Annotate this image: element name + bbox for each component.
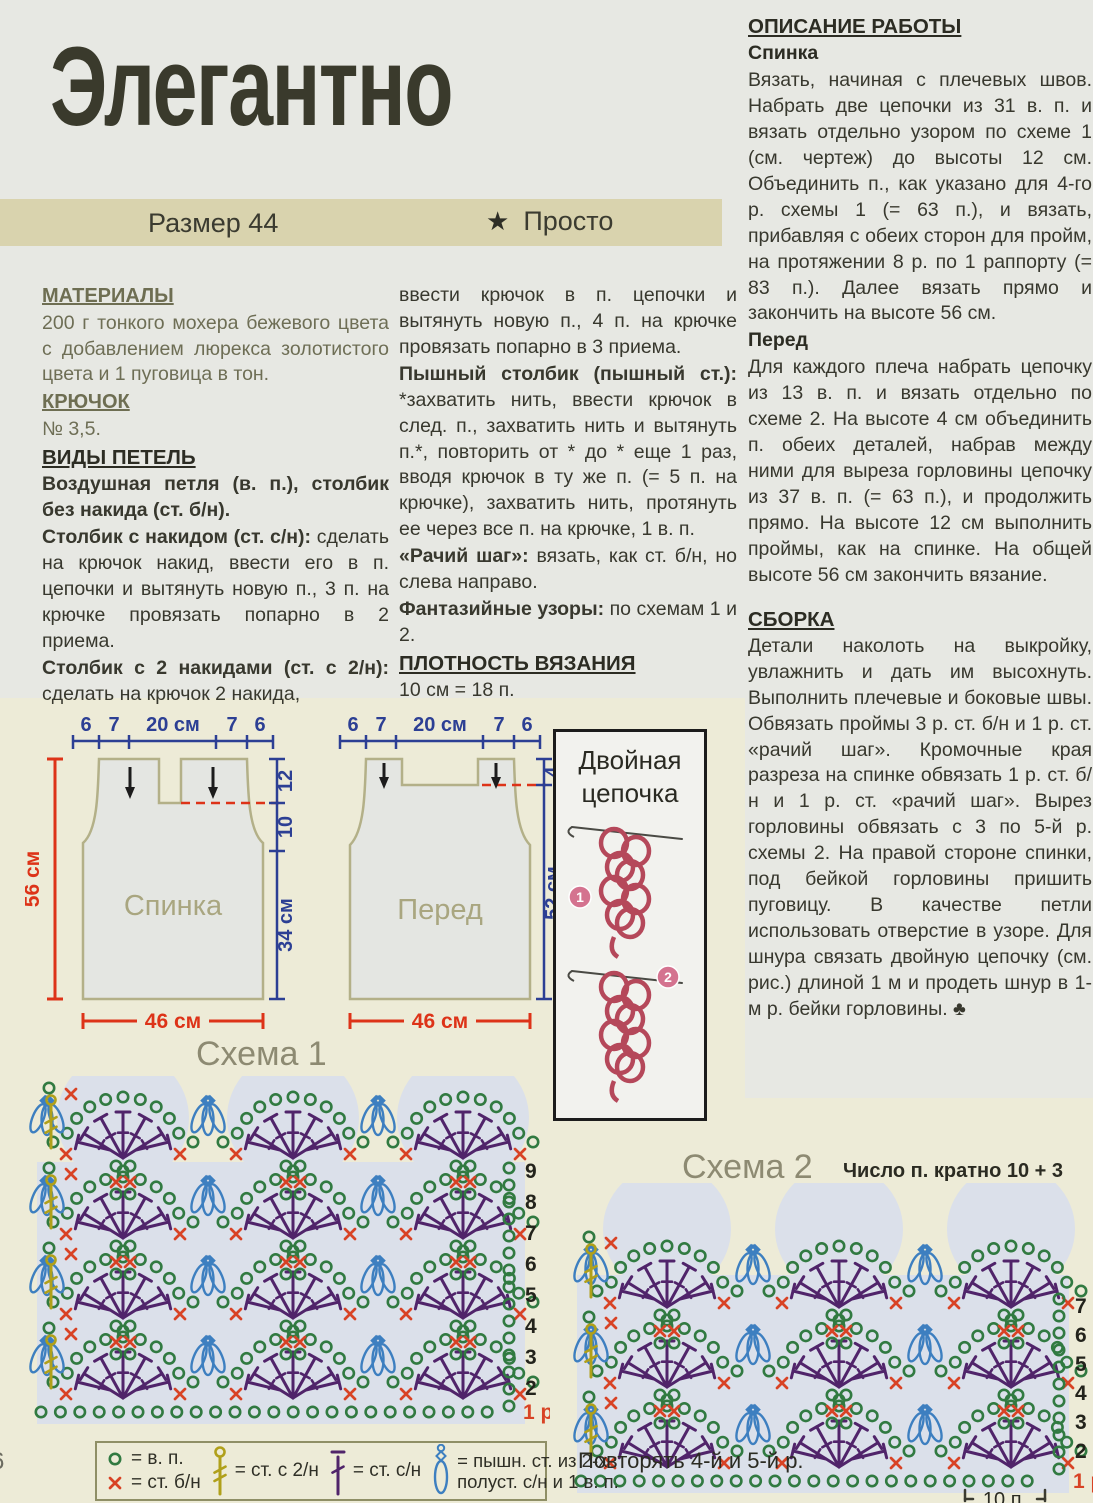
- spacer: [748, 590, 1092, 606]
- legend-col-basic: = в. п. = ст. б/н: [105, 1448, 201, 1494]
- svg-text:1: 1: [576, 889, 584, 905]
- double-chain-box: Двойная цепочка 12: [553, 729, 707, 1121]
- front-top-measure-labels: 6 7 20 см 7 6: [347, 714, 532, 736]
- svg-text:7: 7: [226, 714, 237, 736]
- gauge-text: 10 см = 18 п.: [399, 678, 737, 704]
- assembly-heading: СБОРКА: [748, 606, 1092, 633]
- svg-text:20 см: 20 см: [413, 714, 467, 736]
- svg-text:2: 2: [525, 1377, 537, 1400]
- stitch-paragraph-2: Столбик с накидом (ст. с/н): сделать на …: [42, 525, 389, 655]
- front-bottom-measure-label: 46 см: [412, 1010, 468, 1033]
- double-crochet-icon: [329, 1444, 347, 1498]
- svg-text:4: 4: [525, 1315, 537, 1338]
- svg-text:6: 6: [521, 714, 532, 736]
- fantasy-pattern-paragraph: Фантазийные узоры: по схемам 1 и 2.: [399, 597, 737, 649]
- svg-text:6: 6: [1075, 1324, 1087, 1347]
- front-schematic-diagram: 6 7 20 см 7 6 4 52 см 46 см Перед: [292, 703, 562, 1053]
- back-top-measure-line: [73, 735, 273, 749]
- scheme1-chart: 987654321 р.: [25, 1076, 550, 1432]
- back-left-measure-line: [47, 759, 63, 999]
- svg-text:6: 6: [347, 714, 358, 736]
- svg-text:1 р.: 1 р.: [1073, 1470, 1093, 1493]
- front-instructions: Для каждого плеча набрать цепочку из 13 …: [748, 355, 1092, 588]
- back-left-measure-label: 56 см: [25, 851, 44, 907]
- stitch-paragraph-1: Воздушная петля (в. п.), столбик без нак…: [42, 472, 389, 524]
- front-label: Перед: [397, 894, 483, 926]
- difficulty-label: Просто: [523, 206, 613, 237]
- svg-text:10 п.: 10 п.: [983, 1489, 1027, 1503]
- legend-dc-item: = ст. с/н: [329, 1444, 421, 1498]
- header-band: [0, 199, 722, 246]
- page-title: Элегантно: [50, 22, 452, 151]
- svg-text:2: 2: [664, 969, 672, 985]
- assembly-instructions: Детали наколоть на выкройку, увлажнить и…: [748, 634, 1092, 1023]
- back-top-measure-labels: 6 7 20 см 7 6: [80, 714, 265, 736]
- svg-text:7: 7: [108, 714, 119, 736]
- svg-text:3: 3: [525, 1346, 537, 1369]
- star-icon: ★: [486, 206, 509, 237]
- legend-chain-item: = в. п.: [105, 1448, 201, 1470]
- legend-sc-item: = ст. б/н: [105, 1472, 201, 1494]
- svg-text:5: 5: [1075, 1353, 1087, 1376]
- svg-text:7: 7: [493, 714, 504, 736]
- hook-text: № 3,5.: [42, 417, 389, 443]
- single-crochet-icon: [105, 1474, 125, 1492]
- svg-text:7: 7: [375, 714, 386, 736]
- svg-text:20 см: 20 см: [146, 714, 200, 736]
- chain-stitch-icon: [105, 1450, 125, 1468]
- page-number: 6: [0, 1448, 4, 1476]
- front-top-measure-line: [340, 735, 540, 749]
- back-schematic-diagram: 6 7 20 см 7 6 56 см 12 10 34 см 46 см: [25, 703, 295, 1053]
- right-column: ОПИСАНИЕ РАБОТЫ Спинка Вязать, начиная с…: [748, 13, 1092, 1024]
- treble-stitch-icon: [211, 1444, 229, 1498]
- svg-text:6: 6: [525, 1253, 537, 1276]
- svg-text:8: 8: [525, 1191, 537, 1214]
- svg-text:4: 4: [1075, 1382, 1087, 1405]
- scheme1-title: Схема 1: [196, 1035, 327, 1074]
- double-chain-title: Двойная цепочка: [556, 744, 704, 809]
- back-label: Спинка: [124, 890, 223, 922]
- svg-text:1 р.: 1 р.: [523, 1401, 550, 1424]
- puff-legend-text: = пышн. ст. из 2-х полуст. с/н и 1 в. п.: [457, 1450, 619, 1493]
- stitch-types-heading: ВИДЫ ПЕТЕЛЬ: [42, 444, 389, 471]
- materials-text: 200 г тонкого мохера бежевого цвета с до…: [42, 311, 389, 389]
- scheme2-note: Число п. кратно 10 + 3: [843, 1160, 1063, 1183]
- scheme2-title: Схема 2: [682, 1148, 813, 1187]
- svg-text:7: 7: [525, 1222, 537, 1245]
- front-outline: [350, 759, 530, 999]
- middle-column: ввести крючок в п. цепочки и вытянуть но…: [399, 283, 737, 705]
- svg-text:7: 7: [1075, 1295, 1087, 1318]
- legend-treble-item: = ст. с 2/н: [211, 1444, 319, 1498]
- svg-text:5: 5: [525, 1284, 537, 1307]
- double-chain-illustration: 12: [556, 809, 696, 1109]
- svg-text:6: 6: [80, 714, 91, 736]
- gauge-heading: ПЛОТНОСТЬ ВЯЗАНИЯ: [399, 650, 737, 677]
- back-right-measure-line: [269, 759, 285, 999]
- materials-heading: МАТЕРИАЛЫ: [42, 283, 389, 310]
- stitch-paragraph-3: Столбик с 2 накидами (ст. с 2/н): сделат…: [42, 656, 389, 708]
- back-bottom-measure-label: 46 см: [145, 1010, 201, 1033]
- front-subheading: Перед: [748, 328, 1092, 354]
- symbol-legend: = в. п. = ст. б/н = ст. с 2/н = ст. с/н …: [95, 1441, 547, 1501]
- crab-stitch-paragraph: «Рачий шаг»: вязать, как ст. б/н, но сле…: [399, 544, 737, 596]
- back-instructions: Вязать, начиная с плечевых швов. Набрать…: [748, 68, 1092, 327]
- hook-heading: КРЮЧОК: [42, 389, 389, 416]
- magazine-page: Элегантно Размер 44 ★ Просто МАТЕРИАЛЫ 2…: [0, 0, 1093, 1503]
- continuation-paragraph: ввести крючок в п. цепочки и вытянуть но…: [399, 283, 737, 361]
- difficulty-group: ★ Просто: [486, 206, 613, 237]
- puff-stitch-paragraph: Пышный столбик (пышный ст.): *захватить …: [399, 362, 737, 543]
- size-label: Размер 44: [148, 208, 278, 239]
- svg-text:2: 2: [1075, 1440, 1087, 1463]
- puff-stitch-icon: [431, 1444, 451, 1498]
- svg-text:9: 9: [525, 1160, 537, 1183]
- back-outline: [83, 759, 263, 999]
- back-subheading: Спинка: [748, 41, 1092, 67]
- work-description-heading: ОПИСАНИЕ РАБОТЫ: [748, 13, 1092, 40]
- left-column: МАТЕРИАЛЫ 200 г тонкого мохера бежевого …: [42, 283, 389, 708]
- legend-puff-item: = пышн. ст. из 2-х полуст. с/н и 1 в. п.: [431, 1444, 619, 1498]
- svg-text:3: 3: [1075, 1411, 1087, 1434]
- svg-text:6: 6: [254, 714, 265, 736]
